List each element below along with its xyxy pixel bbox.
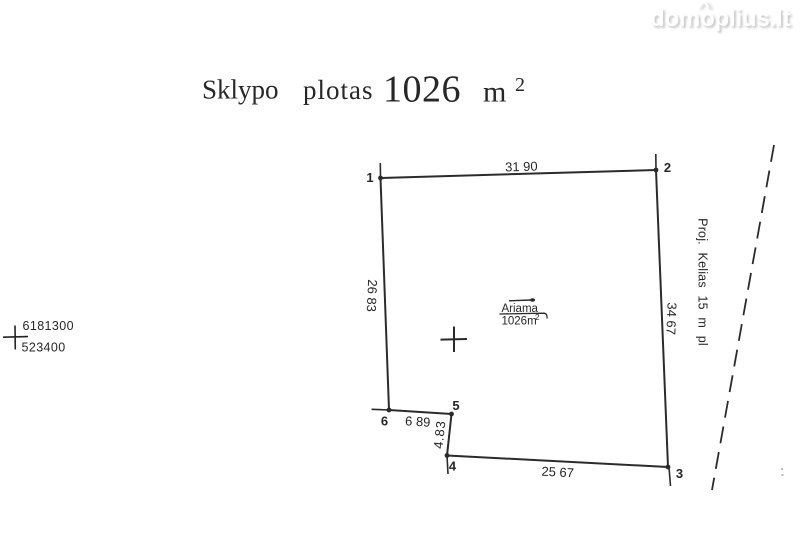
svg-text:1026m: 1026m	[502, 316, 537, 328]
svg-text:26 83: 26 83	[364, 279, 380, 312]
svg-text:2: 2	[664, 160, 671, 175]
svg-text:6: 6	[381, 414, 388, 429]
svg-text:523400: 523400	[22, 341, 66, 355]
svg-text:4.83: 4.83	[431, 420, 449, 450]
svg-text:m: m	[483, 76, 506, 109]
svg-text:1: 1	[366, 170, 373, 185]
svg-text:34 67: 34 67	[663, 302, 679, 335]
svg-text:3: 3	[676, 466, 683, 481]
svg-text:4: 4	[449, 459, 457, 474]
svg-text:plotas: plotas	[303, 75, 374, 105]
svg-text:6181300: 6181300	[23, 319, 74, 333]
svg-text:25 67: 25 67	[541, 464, 574, 481]
svg-text:2: 2	[515, 74, 525, 96]
svg-text:31 90: 31 90	[505, 159, 538, 175]
svg-text:1026: 1026	[383, 69, 461, 111]
svg-text:2: 2	[535, 313, 540, 322]
svg-text:Sklypo: Sklypo	[202, 75, 279, 105]
svg-text:5: 5	[452, 398, 459, 413]
svg-text:Proj. Kelias 15 m pl: Proj. Kelias 15 m pl	[696, 218, 710, 346]
svg-text:6 89: 6 89	[405, 413, 431, 430]
